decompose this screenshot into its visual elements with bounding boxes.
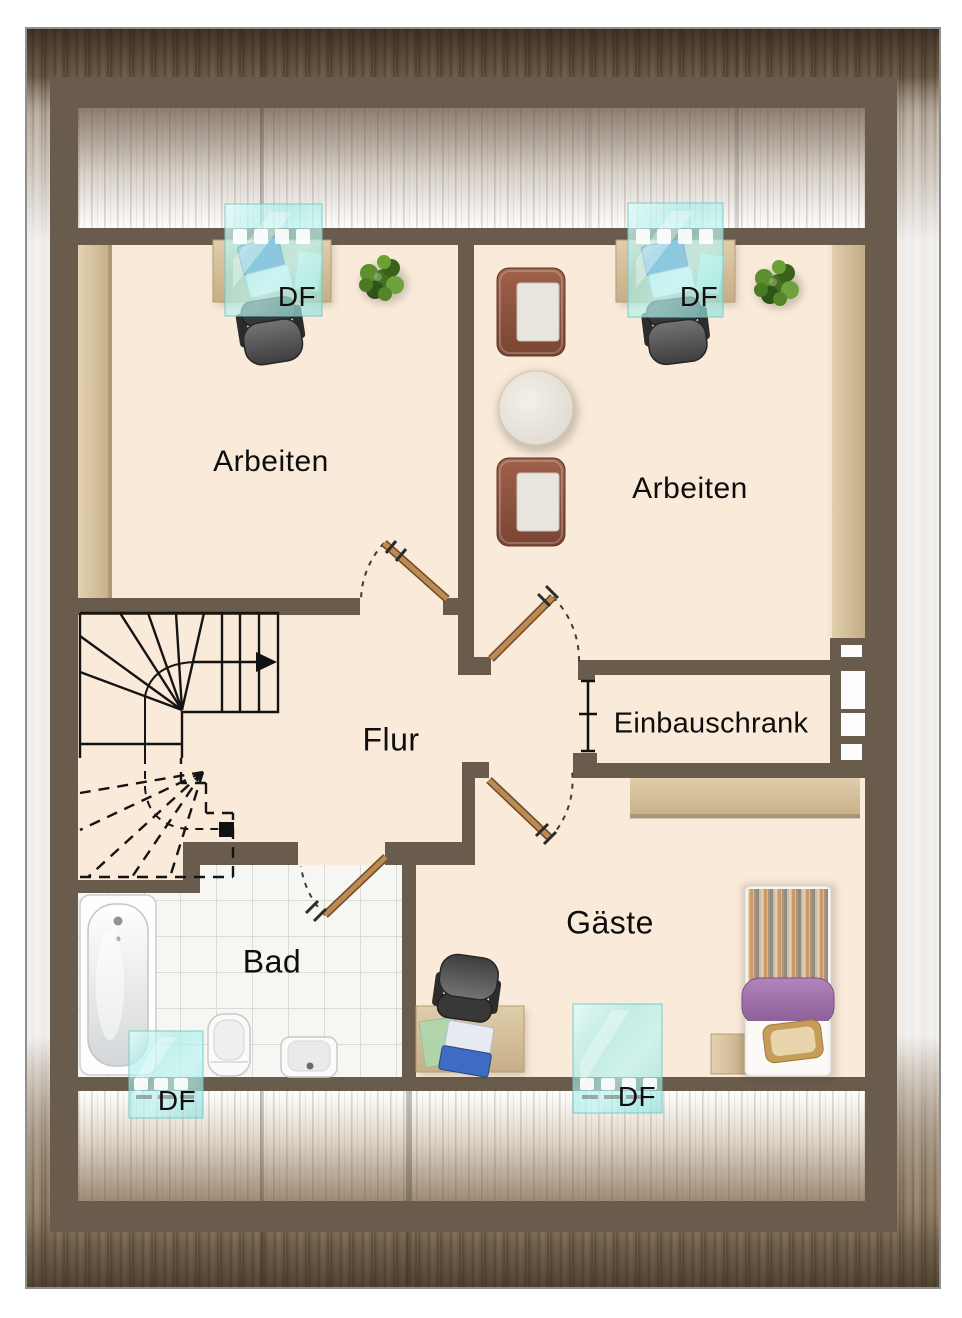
sink: [281, 1037, 337, 1077]
attic-floor-plan: Arbeiten Arbeiten Flur Einbauschrank Bad…: [0, 0, 962, 1318]
window-label-df-arbeiten-right: DF: [680, 281, 718, 313]
room-label-bad: Bad: [243, 944, 301, 981]
room-label-arbeiten-left: Arbeiten: [213, 445, 329, 479]
room-label-gaeste: Gäste: [566, 905, 654, 942]
window-label-df-gaeste: DF: [618, 1081, 656, 1113]
armchair-bottom: [497, 458, 565, 546]
window-label-df-bad: DF: [158, 1085, 196, 1117]
armchair-top: [497, 268, 565, 356]
room-label-flur: Flur: [362, 722, 419, 759]
roof-slope-top: [78, 108, 865, 230]
toilet: [208, 1014, 250, 1076]
room-label-arbeiten-right: Arbeiten: [632, 472, 748, 506]
guest-bed: [742, 884, 836, 1078]
nightstand: [711, 1034, 747, 1074]
floor-plan-canvas: [0, 0, 962, 1318]
round-table: [497, 371, 579, 453]
window-label-df-arbeiten-left: DF: [278, 281, 316, 313]
room-label-einbauschrank: Einbauschrank: [614, 708, 808, 741]
